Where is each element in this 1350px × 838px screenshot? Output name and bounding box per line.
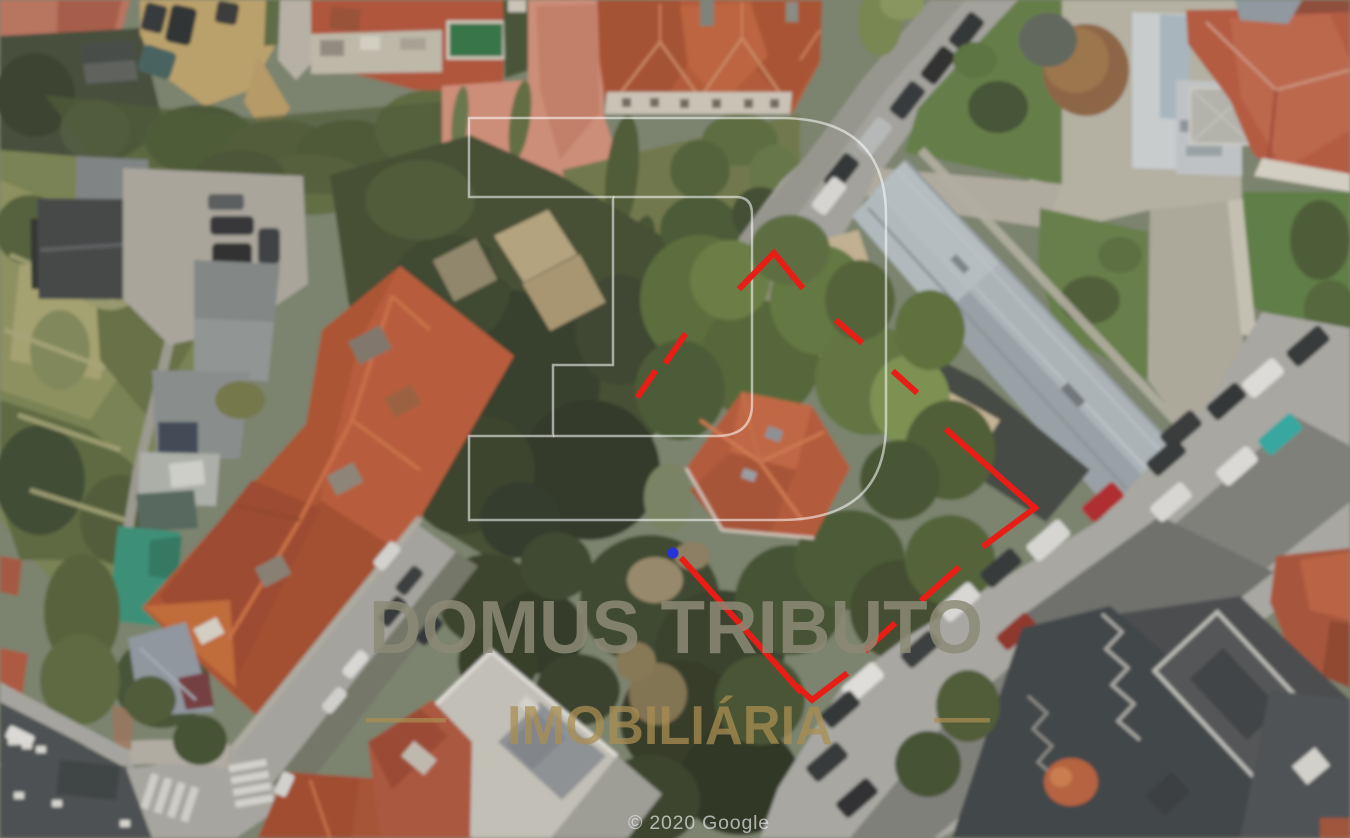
svg-text:© 2020 Google: © 2020 Google bbox=[628, 812, 770, 834]
svg-text:IMOBILIÁRIA: IMOBILIÁRIA bbox=[507, 694, 833, 756]
svg-text:DOMUS TRIBUTO: DOMUS TRIBUTO bbox=[369, 585, 983, 669]
